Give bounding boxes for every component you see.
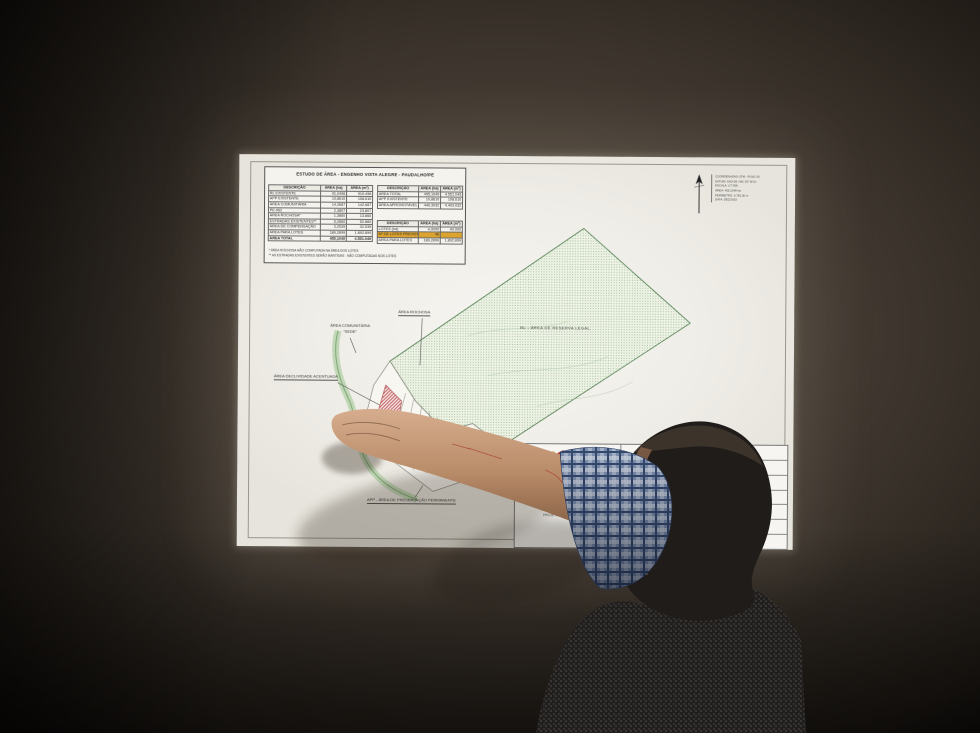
reserva-legal-polygon	[389, 227, 691, 447]
titleblock-row: ESCALA: 1/7.500	[620, 504, 787, 520]
titleblock-row: ENGENHO VISTA ALEGRE	[620, 474, 787, 490]
titleblock-row: GOVERNO DO ESTADO DE PERNAMBUCO	[620, 445, 787, 461]
sheet-content: ESTUDO DE ÁREA - ENGENHO VISTA ALEGRE - …	[237, 154, 796, 550]
label-sede: "SEDE"	[324, 329, 376, 334]
titleblock-rows: GOVERNO DO ESTADO DE PERNAMBUCOITERPE - …	[620, 445, 788, 549]
pernambuco-map-icon	[545, 447, 591, 460]
photo-of-projected-map: ESTUDO DE ÁREA - ENGENHO VISTA ALEGRE - …	[0, 0, 980, 733]
titleblock-note: PROJETO DE PARCELAMENTO	[515, 489, 620, 548]
titleblock-row: DATA: DEZ/2010	[620, 534, 787, 549]
iterpe-logo: Iterpe INSTITUTO DE TERRAS E REFORMA AGR…	[515, 444, 621, 491]
label-area-rochosa: ÁREA ROCHOSA	[398, 309, 430, 316]
title-block: Iterpe INSTITUTO DE TERRAS E REFORMA AGR…	[514, 443, 789, 550]
label-declividade: ÁREA DECLIVIDADE ACENTUADA	[274, 373, 338, 380]
projected-map-sheet: ESTUDO DE ÁREA - ENGENHO VISTA ALEGRE - …	[237, 154, 796, 550]
label-app: APP - ÁREA DE PRESERVAÇÃO PERMANENTE	[367, 497, 456, 504]
titleblock-row: MUNICÍPIO: PAUDALHO - PE	[620, 489, 787, 505]
titleblock-row: ÁREA: 455,1049 ha	[620, 519, 787, 535]
label-area-comunitaria: ÁREA COMUNITÁRIA	[324, 323, 376, 328]
titleblock-row: ITERPE - INSTITUTO DE TERRAS	[620, 460, 787, 476]
label-reserva-legal: RL - ÁREA DE RESERVA LEGAL	[494, 325, 616, 331]
